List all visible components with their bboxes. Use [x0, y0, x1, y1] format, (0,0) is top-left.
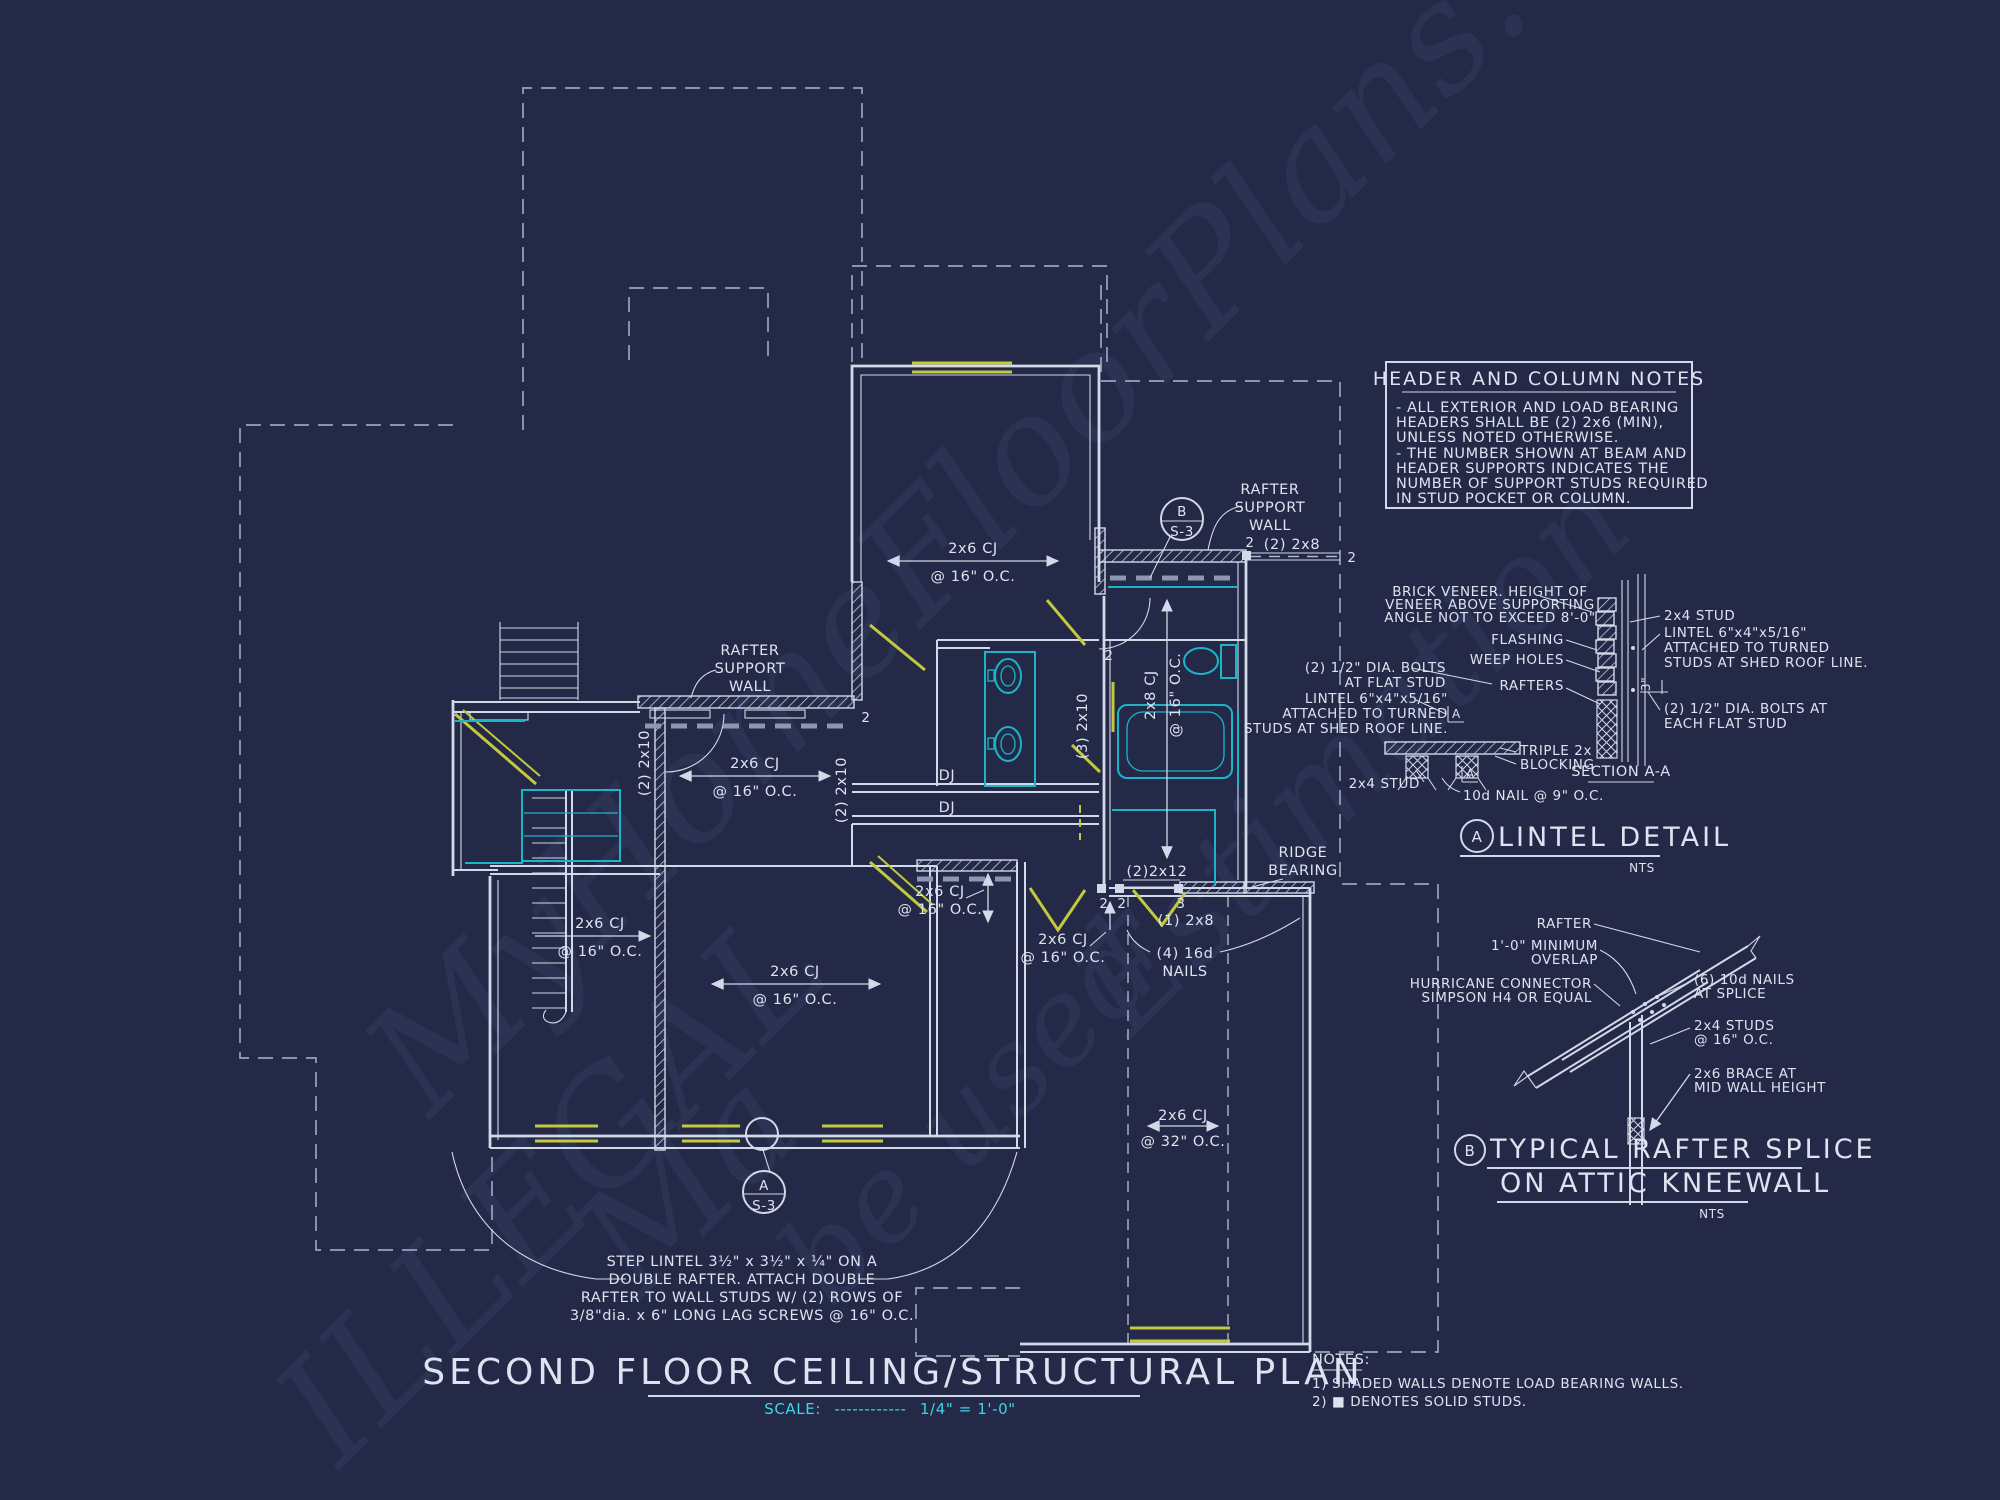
callout: SIMPSON H4 OR EQUAL	[1422, 990, 1592, 1006]
beam-label: (1) 2x8	[1158, 913, 1214, 929]
joist-spacing-label: @ 16" O.C.	[897, 902, 982, 918]
callout: LINTEL 6"x4"x5/16"	[1664, 625, 1807, 641]
beam-label: (3) 2x10	[1075, 693, 1091, 759]
note-line: 2) ■ DENOTES SOLID STUDS.	[1312, 1394, 1527, 1410]
scale-value: 1/4" = 1'-0"	[920, 1400, 1016, 1418]
joist-spacing-label: @ 16" O.C.	[1020, 950, 1105, 966]
joist-label: 2x8 CJ	[1143, 670, 1159, 720]
load-bearing-wall	[852, 582, 862, 700]
callout: (2) 1/2" DIA. BOLTS	[1305, 660, 1446, 676]
stud-count: 2	[1245, 535, 1254, 551]
load-bearing-wall	[1095, 528, 1105, 594]
callout: AT SPLICE	[1694, 986, 1766, 1002]
note-line: HEADER SUPPORTS INDICATES THE	[1396, 461, 1669, 477]
callout: 2x4 STUD	[1664, 608, 1735, 624]
dimension-text: 3"	[1639, 677, 1653, 691]
beam-label: (2) 2x8	[1264, 537, 1320, 553]
joist-spacing-label: @ 16" O.C.	[712, 784, 797, 800]
beam-label: (2) 2x10	[834, 757, 850, 823]
scale-dashes: ------------	[834, 1400, 906, 1418]
joist-label: 2x6 CJ	[948, 541, 998, 557]
callout: 10d NAIL @ 9" O.C.	[1463, 788, 1604, 804]
toilet	[1184, 648, 1218, 674]
note-line: UNLESS NOTED OTHERWISE.	[1396, 430, 1619, 446]
stud-count: 2	[1347, 550, 1356, 566]
blueprint-canvas: MyHomeFloorPlans.com ILLEGAL Ma be used …	[0, 0, 2000, 1500]
detail-tag: A	[1472, 828, 1483, 846]
callout: STUDS AT SHED ROOF LINE.	[1664, 655, 1868, 671]
note-line: - THE NUMBER SHOWN AT BEAM AND	[1396, 446, 1687, 462]
note-line: DOUBLE RAFTER. ATTACH DOUBLE	[609, 1272, 876, 1288]
lintel-detail-title: A LINTEL DETAIL NTS	[1460, 820, 1731, 875]
double-joist-label: DJ	[939, 800, 956, 816]
callout: 2x4 STUD	[1349, 776, 1420, 792]
stud-count: 2	[1117, 896, 1126, 912]
stud-count: 3	[1176, 896, 1185, 912]
load-bearing-wall	[655, 708, 665, 1150]
rafter-support-wall-label: WALL	[729, 679, 771, 695]
nails-label: (4) 16d	[1156, 946, 1213, 962]
callout: LINTEL 6"x4"x5/16"	[1305, 691, 1448, 707]
callout: FLASHING	[1491, 632, 1564, 648]
section-letter: B	[1177, 504, 1187, 520]
detail-scale: NTS	[1699, 1207, 1725, 1221]
note-line: 1) SHADED WALLS DENOTE LOAD BEARING WALL…	[1312, 1376, 1684, 1392]
rafter-splice-detail: RAFTER 1'-0" MINIMUM OVERLAP HURRICANE C…	[1410, 916, 1876, 1221]
callout: RAFTERS	[1499, 678, 1564, 694]
joist-spacing-label: @ 32" O.C.	[1140, 1134, 1225, 1150]
joist-label: 2x6 CJ	[915, 884, 965, 900]
callout: WEEP HOLES	[1470, 652, 1564, 668]
detail-scale: NTS	[1629, 861, 1655, 875]
section-letter: A	[759, 1178, 769, 1194]
callout: @ 16" O.C.	[1694, 1032, 1774, 1048]
callout: ATTACHED TO TURNED	[1282, 706, 1448, 722]
callout: (2) 1/2" DIA. BOLTS AT	[1664, 701, 1828, 717]
note-line: NUMBER OF SUPPORT STUDS REQUIRED	[1396, 476, 1708, 492]
callout: STUDS AT SHED ROOF LINE.	[1244, 721, 1448, 737]
rafter-splice-title: B TYPICAL RAFTER SPLICE ON ATTIC KNEEWAL…	[1455, 1134, 1876, 1221]
load-bearing-wall	[638, 696, 854, 708]
joist-label: 2x6 CJ	[770, 964, 820, 980]
sheet-number: S-3	[752, 1198, 776, 1214]
joist-spacing-label: @ 16" O.C.	[930, 569, 1015, 585]
joist-label: 2x6 CJ	[730, 756, 780, 772]
callout: MID WALL HEIGHT	[1694, 1080, 1826, 1096]
stud-count: 2	[861, 710, 870, 726]
joist-label: 2x6 CJ	[575, 916, 625, 932]
sink	[995, 727, 1021, 761]
stud-count: 2	[1104, 648, 1113, 664]
sheet-number: S-3	[1170, 524, 1194, 540]
nails-label: NAILS	[1162, 964, 1207, 980]
detail-title: TYPICAL RAFTER SPLICE	[1489, 1134, 1876, 1165]
joist-spacing-label: @ 16" O.C.	[1168, 652, 1184, 737]
sheet-title: SECOND FLOOR CEILING/STRUCTURAL PLAN	[422, 1352, 1363, 1393]
callout: EACH FLAT STUD	[1664, 716, 1787, 732]
rafter-support-wall-label: WALL	[1249, 518, 1291, 534]
joist-spacing-label: @ 16" O.C.	[557, 944, 642, 960]
joist-label: 2x6 CJ	[1038, 932, 1088, 948]
header-column-notes: HEADER AND COLUMN NOTES - ALL EXTERIOR A…	[1373, 362, 1708, 508]
joist-label: 2x6 CJ	[1158, 1108, 1208, 1124]
note-line: 3/8"dia. x 6" LONG LAG SCREWS @ 16" O.C.	[570, 1308, 914, 1324]
detail-title: LINTEL DETAIL	[1498, 822, 1731, 853]
blueprint-page: MyHomeFloorPlans.com ILLEGAL Ma be used …	[0, 0, 2000, 1500]
rafter-support-wall-label: SUPPORT	[715, 661, 786, 677]
ridge-bearing-label: BEARING	[1268, 863, 1338, 879]
joist-spacing-label: @ 16" O.C.	[752, 992, 837, 1008]
notes-box-title: HEADER AND COLUMN NOTES	[1373, 368, 1705, 390]
sink	[995, 659, 1021, 693]
beam-label: (2) 2x10	[637, 730, 653, 796]
detail-title: ON ATTIC KNEEWALL	[1500, 1168, 1831, 1199]
rafter-support-wall-label: SUPPORT	[1235, 500, 1306, 516]
rafter-support-wall-label: RAFTER	[1240, 482, 1299, 498]
rafter-support-wall-label: RAFTER	[720, 643, 779, 659]
callout: RAFTER	[1537, 916, 1592, 932]
general-notes: NOTES: 1) SHADED WALLS DENOTE LOAD BEARI…	[1312, 1352, 1684, 1410]
scale-label: SCALE: ------------ 1/4" = 1'-0"	[764, 1400, 1016, 1418]
section-tag-b: B S-3	[1150, 498, 1203, 578]
callout: ATTACHED TO TURNED	[1664, 640, 1830, 656]
title-block: SECOND FLOOR CEILING/STRUCTURAL PLAN SCA…	[422, 1352, 1363, 1418]
note-line: - ALL EXTERIOR AND LOAD BEARING	[1396, 400, 1679, 416]
vanity	[985, 652, 1035, 786]
ridge-bearing-label: RIDGE	[1279, 845, 1328, 861]
scale-prefix: SCALE:	[764, 1400, 821, 1418]
note-line: HEADERS SHALL BE (2) 2x6 (MIN),	[1396, 415, 1664, 431]
load-bearing-wall	[1099, 550, 1246, 562]
section-label: SECTION A-A	[1571, 764, 1671, 780]
note-line: RAFTER TO WALL STUDS W/ (2) ROWS OF	[581, 1290, 903, 1306]
marker-letter: A	[1452, 707, 1461, 721]
brick-veneer-drawing	[1596, 574, 1645, 766]
callout: AT FLAT STUD	[1345, 675, 1446, 691]
double-joist-label: DJ	[939, 768, 956, 784]
callout: ANGLE NOT TO EXCEED 8'-0"	[1384, 610, 1596, 626]
detail-tag: B	[1465, 1142, 1476, 1160]
note-line: STEP LINTEL 3½" x 3½" x ¼" ON A	[607, 1254, 878, 1270]
callout: OVERLAP	[1531, 952, 1598, 968]
beam-label: (2)2x12	[1127, 864, 1188, 880]
note-line: IN STUD POCKET OR COLUMN.	[1396, 491, 1631, 507]
stud-count: 2	[1099, 896, 1108, 912]
